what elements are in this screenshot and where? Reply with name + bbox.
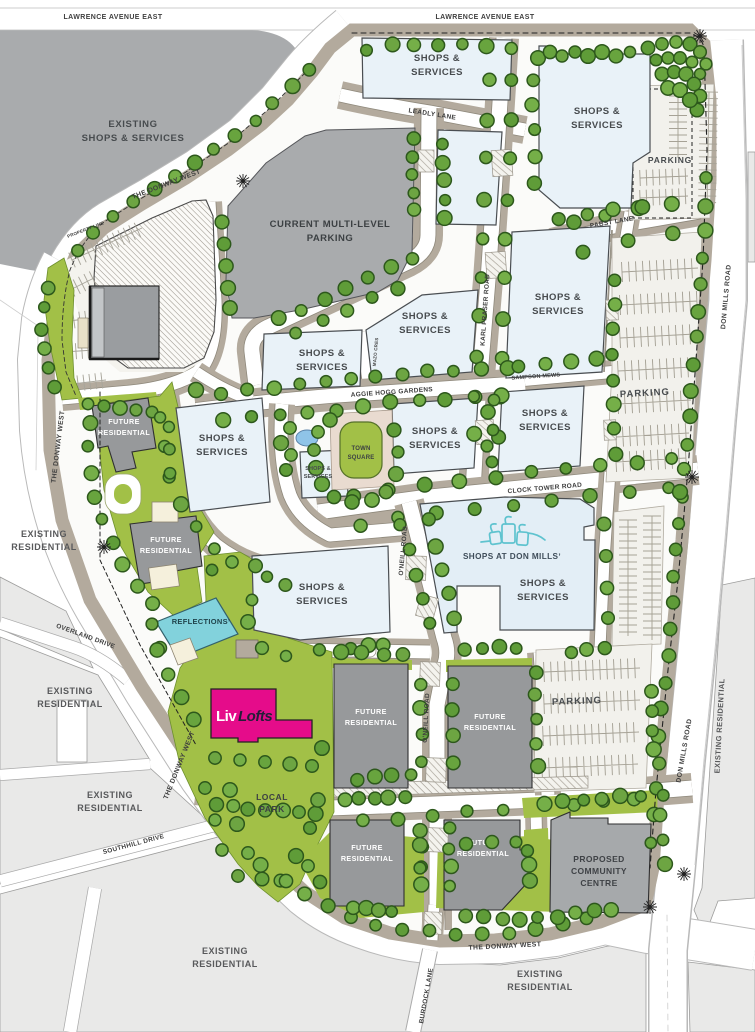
- svg-text:SHOPS &: SHOPS &: [402, 311, 448, 322]
- svg-text:SERVICES: SERVICES: [399, 325, 451, 336]
- svg-text:FUTURE: FUTURE: [108, 417, 140, 426]
- svg-text:SHOPS &: SHOPS &: [574, 106, 620, 117]
- svg-text:RESIDENTIAL: RESIDENTIAL: [341, 854, 394, 863]
- svg-text:SERVICES: SERVICES: [411, 67, 463, 78]
- svg-text:SQUARE: SQUARE: [348, 455, 375, 461]
- svg-text:RESIDENTIAL: RESIDENTIAL: [140, 546, 193, 555]
- svg-text:SERVICES: SERVICES: [304, 474, 333, 480]
- svg-text:SHOPS &: SHOPS &: [299, 348, 345, 359]
- svg-text:RESIDENTIAL: RESIDENTIAL: [345, 718, 398, 727]
- svg-text:SHOPS & SERVICES: SHOPS & SERVICES: [82, 133, 185, 144]
- svg-text:LAWRENCE AVENUE EAST: LAWRENCE AVENUE EAST: [63, 14, 162, 21]
- svg-text:SHOPS &: SHOPS &: [199, 433, 245, 444]
- svg-text:TOWN: TOWN: [351, 446, 370, 452]
- svg-text:PARKING: PARKING: [648, 155, 692, 165]
- svg-text:EXISTING: EXISTING: [202, 946, 248, 956]
- svg-text:LOCAL: LOCAL: [256, 792, 288, 802]
- svg-text:EXISTING: EXISTING: [87, 790, 133, 800]
- svg-text:Lofts: Lofts: [238, 708, 272, 725]
- svg-text:REFLECTIONSʼ: REFLECTIONSʼ: [172, 617, 231, 626]
- svg-text:EXISTING: EXISTING: [517, 969, 563, 979]
- svg-text:SERVICES: SERVICES: [296, 362, 348, 373]
- svg-text:SHOPS &: SHOPS &: [535, 292, 581, 303]
- svg-text:PROPOSED: PROPOSED: [573, 854, 624, 864]
- svg-text:SERVICES: SERVICES: [296, 596, 348, 607]
- svg-text:RESIDENTIAL: RESIDENTIAL: [192, 959, 258, 969]
- svg-text:FUTURE: FUTURE: [474, 712, 506, 721]
- svg-text:FUTURE: FUTURE: [150, 535, 182, 544]
- svg-text:SHOPS &: SHOPS &: [305, 466, 330, 472]
- svg-text:SERVICES: SERVICES: [519, 422, 571, 433]
- svg-text:COMMUNITY: COMMUNITY: [571, 866, 627, 876]
- svg-text:RESIDENTIAL: RESIDENTIAL: [77, 803, 143, 813]
- svg-text:RESIDENTIAL: RESIDENTIAL: [464, 723, 517, 732]
- svg-text:EXISTING: EXISTING: [21, 529, 67, 539]
- svg-text:SHOPS AT DON MILLSʼ: SHOPS AT DON MILLSʼ: [463, 552, 561, 561]
- svg-text:SHOPS &: SHOPS &: [412, 426, 458, 437]
- svg-text:SERVICES: SERVICES: [196, 447, 248, 458]
- svg-text:EXISTING: EXISTING: [108, 119, 157, 130]
- svg-text:PARKING: PARKING: [552, 695, 602, 708]
- svg-text:PARK: PARK: [259, 804, 285, 814]
- svg-text:Liv: Liv: [216, 708, 237, 725]
- svg-text:SERVICES: SERVICES: [571, 120, 623, 131]
- svg-text:SHOPS &: SHOPS &: [414, 53, 460, 64]
- svg-text:SHOPS &: SHOPS &: [520, 578, 566, 589]
- svg-text:RESIDENTIAL: RESIDENTIAL: [37, 699, 103, 709]
- svg-text:SERVICES: SERVICES: [517, 592, 569, 603]
- svg-text:SERVICES: SERVICES: [532, 306, 584, 317]
- svg-text:SERVICES: SERVICES: [409, 440, 461, 451]
- svg-text:CENTRE: CENTRE: [580, 878, 617, 888]
- svg-text:RESIDENTIAL: RESIDENTIAL: [98, 428, 151, 437]
- svg-text:FUTURE: FUTURE: [355, 707, 387, 716]
- svg-text:FUTURE: FUTURE: [351, 843, 383, 852]
- svg-text:RESIDENTIAL: RESIDENTIAL: [11, 542, 77, 552]
- svg-text:EXISTING: EXISTING: [47, 686, 93, 696]
- svg-text:CURRENT MULTI-LEVEL: CURRENT MULTI-LEVEL: [270, 219, 391, 230]
- svg-text:SHOPS &: SHOPS &: [299, 582, 345, 593]
- svg-text:PARKING: PARKING: [307, 233, 354, 244]
- svg-text:LAWRENCE AVENUE EAST: LAWRENCE AVENUE EAST: [435, 14, 534, 21]
- svg-text:SHOPS &: SHOPS &: [522, 408, 568, 419]
- svg-text:RESIDENTIAL: RESIDENTIAL: [507, 982, 573, 992]
